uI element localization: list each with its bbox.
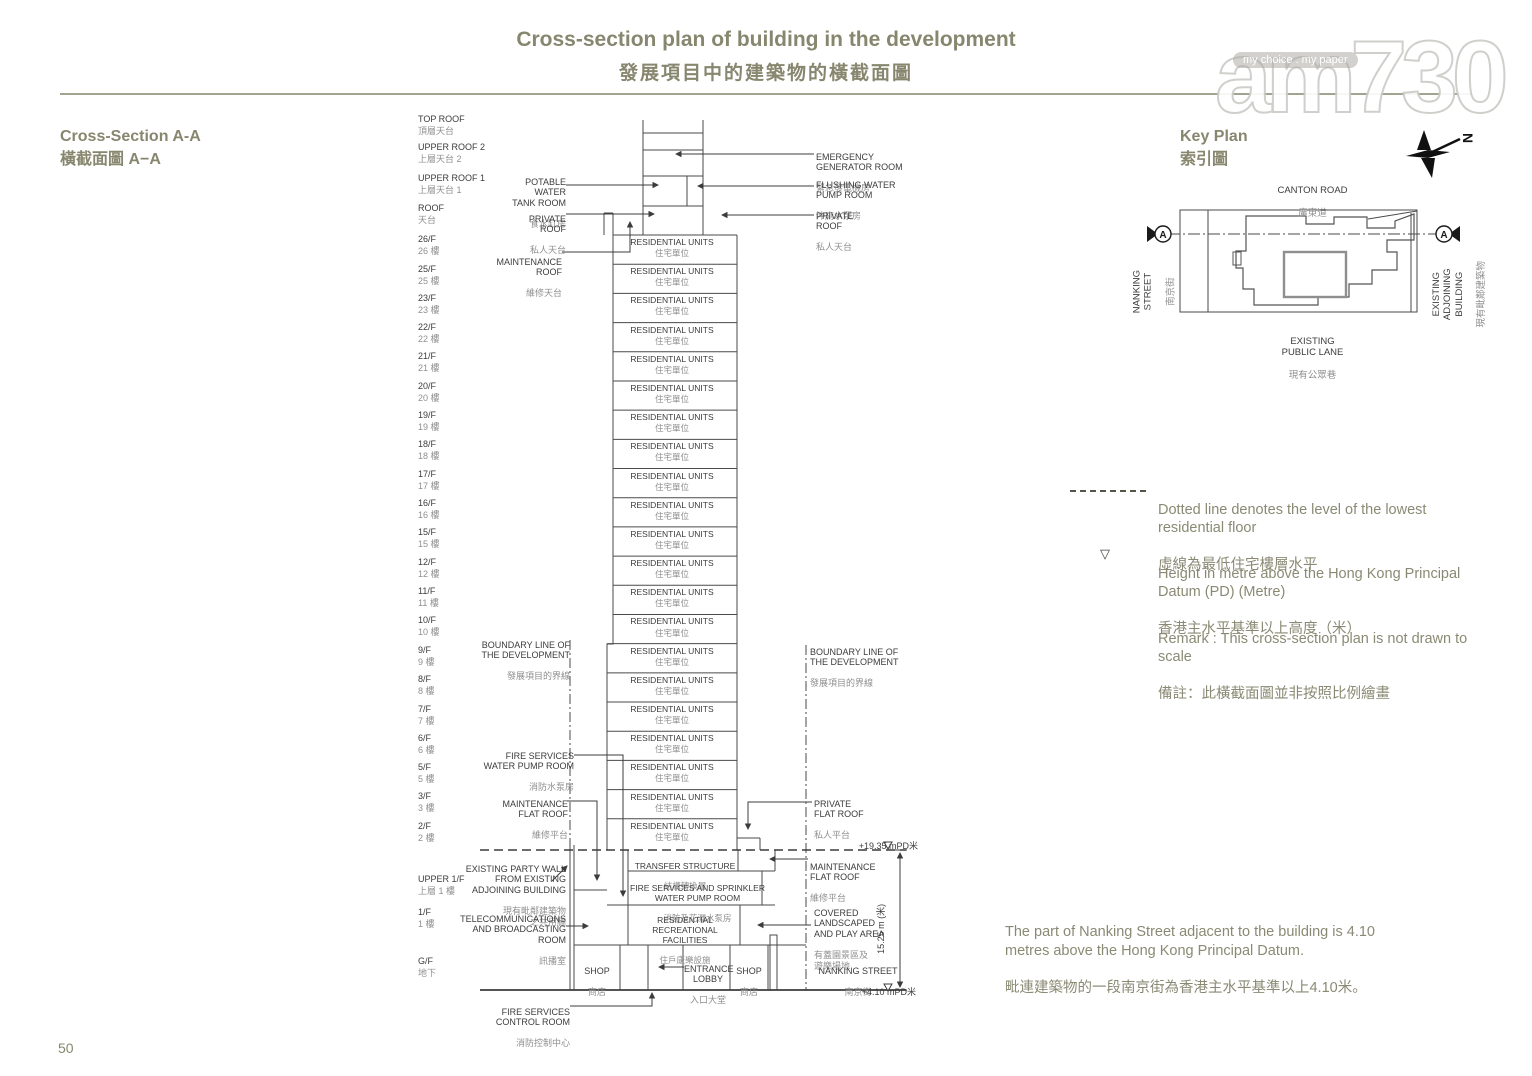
keyplan-nanking-street: NANKING STREET 南京街: [1120, 246, 1187, 338]
residential-units-row: RESIDENTIAL UNITS住宅單位: [607, 673, 737, 702]
legend-dashed-line-symbol: [1070, 490, 1146, 492]
residential-units-row: RESIDENTIAL UNITS住宅單位: [607, 264, 737, 293]
callout-fire-services-control-room: FIRE SERVICES CONTROL ROOM 消防控制中心: [496, 996, 570, 1060]
key-plan-heading: Key Plan 索引圖: [1180, 125, 1248, 171]
residential-units-row: RESIDENTIAL UNITS住宅單位: [607, 556, 737, 585]
floor-label-20-f: 20/F20 樓: [418, 380, 538, 404]
residential-units-row: RESIDENTIAL UNITS住宅單位: [607, 293, 737, 322]
floor-label-19-f: 19/F19 樓: [418, 409, 538, 433]
residential-units-row: RESIDENTIAL UNITS住宅單位: [607, 410, 737, 439]
dimension-label: 15.25 m (米): [865, 895, 897, 963]
callout-boundary-line-right: BOUNDARY LINE OF THE DEVELOPMENT 發展項目的界線: [810, 636, 899, 700]
residential-units-row: RESIDENTIAL UNITS住宅單位: [607, 235, 737, 264]
residential-units-row: RESIDENTIAL UNITS住宅單位: [607, 644, 737, 673]
residential-units-row: RESIDENTIAL UNITS住宅單位: [607, 381, 737, 410]
key-plan-heading-zh: 索引圖: [1180, 151, 1228, 168]
keyplan-canton-road: CANTON ROAD 廣東道: [1245, 174, 1380, 230]
residential-units-row: RESIDENTIAL UNITS住宅單位: [607, 469, 737, 498]
callout-maintenance-flat-roof-left: MAINTENANCE FLAT ROOF 維修平台: [502, 788, 568, 852]
residential-units-row: RESIDENTIAL UNITS住宅單位: [607, 323, 737, 352]
north-arrow-icon: N: [1406, 130, 1476, 178]
section-marker-left: A: [1147, 226, 1171, 242]
keyplan-existing-adjoining-building: EXISTING ADJOINING BUILDING 現有毗鄰建築物: [1420, 239, 1498, 349]
floor-label-21-f: 21/F21 樓: [418, 350, 538, 374]
residential-units-row: RESIDENTIAL UNITS住宅單位: [607, 527, 737, 556]
key-plan-heading-en: Key Plan: [1180, 128, 1248, 145]
floor-label-12-f: 12/F12 樓: [418, 556, 538, 580]
label-shop-right: SHOP 商店: [727, 955, 771, 1008]
floor-label-15-f: 15/F15 樓: [418, 526, 538, 550]
residential-units-row: RESIDENTIAL UNITS住宅單位: [607, 702, 737, 731]
label-entrance-lobby: ENTRANCE LOBBY 入口大堂: [684, 953, 732, 1017]
floor-label-16-f: 16/F16 樓: [418, 497, 538, 521]
nanking-street-note: The part of Nanking Street adjacent to t…: [1005, 904, 1397, 998]
brochure-page: Cross-section plan of building in the de…: [0, 0, 1532, 1076]
callout-private-flat-roof: PRIVATE FLAT ROOF 私人平台: [814, 788, 864, 852]
label-shop-left: SHOP 商店: [575, 955, 619, 1008]
floor-label-11-f: 11/F11 樓: [418, 585, 538, 609]
legend-remark: Remark : This cross-section plan is not …: [1158, 612, 1488, 703]
residential-units-row: RESIDENTIAL UNITS住宅單位: [607, 585, 737, 614]
residential-units-row: RESIDENTIAL UNITS住宅單位: [607, 498, 737, 527]
floor-label-upper-roof-2: UPPER ROOF 2上層天台 2: [418, 141, 538, 165]
floor-label-7-f: 7/F7 樓: [418, 703, 538, 727]
callout-private-roof-right: PRIVATE ROOF 私人天台: [816, 200, 853, 264]
page-number: 50: [58, 1040, 74, 1056]
residential-units-row: RESIDENTIAL UNITS住宅單位: [607, 439, 737, 468]
residential-units-row: RESIDENTIAL UNITS住宅單位: [607, 819, 737, 848]
level-bottom-label: +4.10 mPD米: [862, 976, 916, 1008]
residential-units-row: RESIDENTIAL UNITS住宅單位: [607, 614, 737, 643]
residential-units-row: RESIDENTIAL UNITS住宅單位: [607, 731, 737, 760]
keyplan-existing-public-lane: EXISTING PUBLIC LANE 現有公眾巷: [1245, 325, 1380, 392]
svg-text:A: A: [1159, 230, 1166, 241]
residential-units-row: RESIDENTIAL UNITS住宅單位: [607, 352, 737, 381]
floor-label-22-f: 22/F22 樓: [418, 321, 538, 345]
callout-telecom-broadcasting-room: TELECOMMUNICATIONS AND BROADCASTING ROOM…: [460, 903, 566, 977]
floor-label-top-roof: TOP ROOF頂層天台: [418, 113, 538, 137]
callout-boundary-line-left: BOUNDARY LINE OF THE DEVELOPMENT 發展項目的界線: [481, 629, 570, 693]
residential-units-row: RESIDENTIAL UNITS住宅單位: [607, 790, 737, 819]
residential-units-row: RESIDENTIAL UNITS住宅單位: [607, 760, 737, 789]
legend-datum-triangle-icon: ▽: [1100, 546, 1110, 562]
floor-label-17-f: 17/F17 樓: [418, 468, 538, 492]
floor-label-18-f: 18/F18 樓: [418, 438, 538, 462]
footprint-courtyard: [1284, 252, 1346, 297]
callout-maintenance-roof: MAINTENANCE ROOF 維修天台: [496, 246, 562, 310]
svg-text:N: N: [1460, 133, 1476, 143]
